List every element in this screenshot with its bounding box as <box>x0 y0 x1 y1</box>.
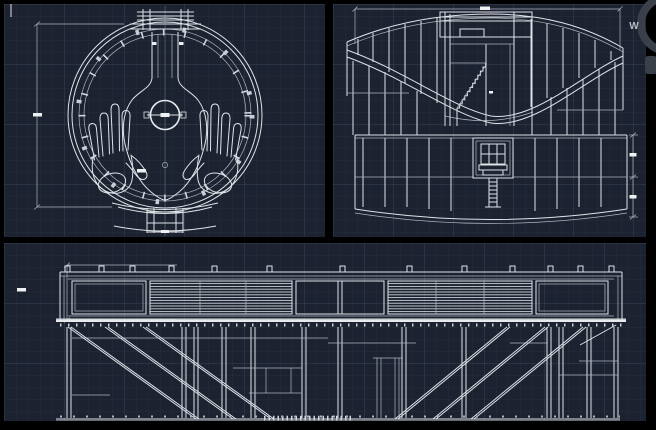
plan-note-blob <box>137 169 146 173</box>
section-drawing <box>4 243 646 421</box>
viewport-plan[interactable] <box>4 4 325 237</box>
elev-doorway <box>473 138 513 207</box>
elev-base <box>355 135 627 224</box>
plan-note-blob <box>152 42 157 45</box>
viewport-elevation[interactable] <box>333 4 646 237</box>
compass-ring-icon[interactable] <box>641 0 656 51</box>
plan-dim-text-blob <box>33 113 42 117</box>
plan-note-blob <box>179 42 184 45</box>
sect-dim-text-blob <box>17 288 26 292</box>
navbar-partial-icon[interactable] <box>645 56 656 74</box>
viewcube-compass[interactable]: W <box>626 0 656 92</box>
compass-west-label[interactable]: W <box>629 21 639 32</box>
sect-deck <box>56 266 626 325</box>
plan-right-hand <box>183 104 241 196</box>
elev-dim-text-blob <box>480 7 490 11</box>
plan-top-bridge <box>130 9 201 30</box>
plan-left-hand <box>89 104 147 196</box>
viewport-section[interactable] <box>4 243 646 421</box>
sect-hull-framing <box>56 325 620 421</box>
plan-drawing <box>4 4 325 237</box>
elev-dim-text-blob <box>630 195 637 199</box>
elev-dimension-top <box>353 7 623 51</box>
elev-dimension-right <box>629 133 638 220</box>
elevation-drawing <box>333 4 646 237</box>
elev-bowl <box>347 14 623 135</box>
plan-note-blob <box>161 230 169 233</box>
cad-canvas: W <box>0 0 656 430</box>
elev-dim-text-blob <box>630 153 637 157</box>
